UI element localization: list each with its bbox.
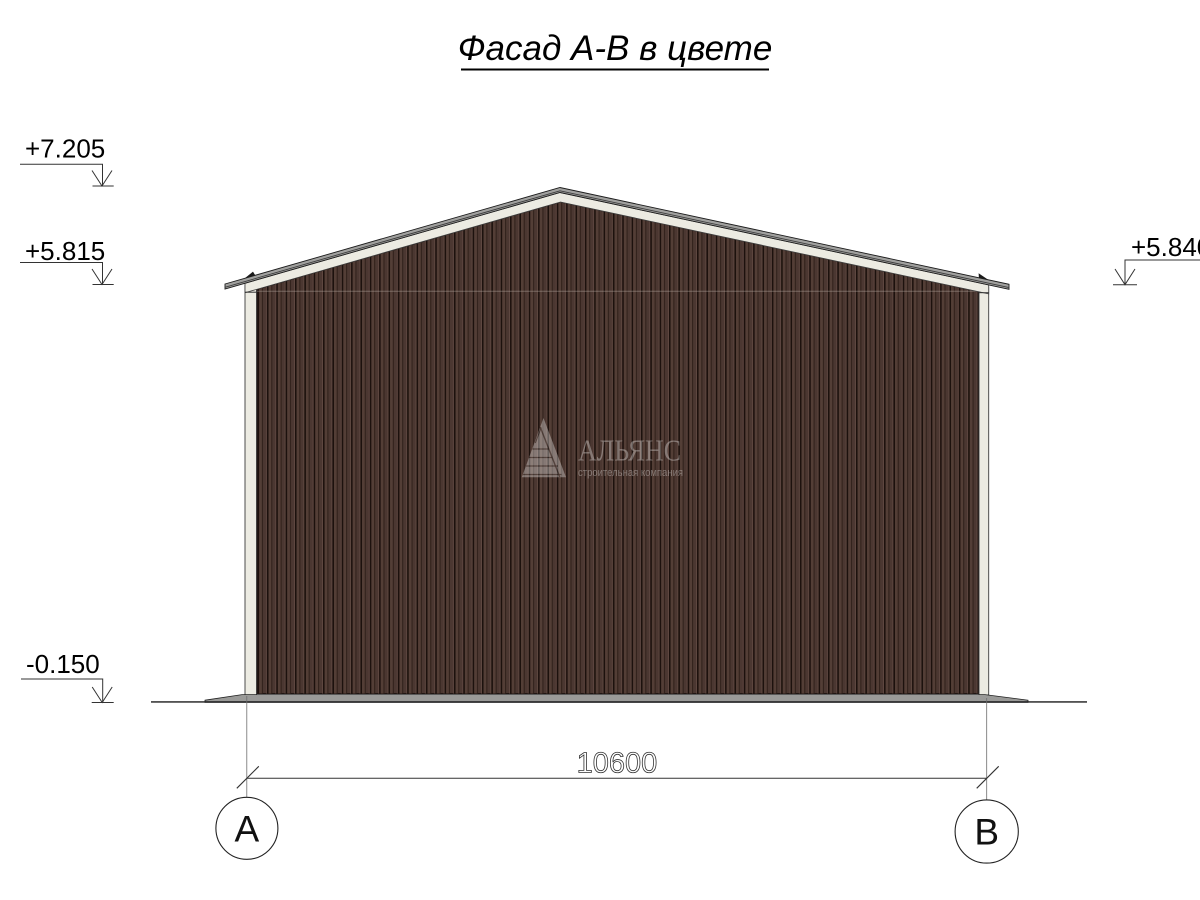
svg-text:+7.205: +7.205: [25, 134, 105, 164]
svg-text:АЛЬЯНС: АЛЬЯНС: [578, 433, 681, 468]
svg-text:В: В: [974, 812, 999, 853]
svg-text:+5.840: +5.840: [1131, 232, 1200, 262]
svg-text:10600: 10600: [577, 748, 658, 780]
svg-text:А: А: [235, 809, 260, 850]
svg-text:строительная компания: строительная компания: [578, 467, 683, 479]
svg-text:Фасад А-В в цвете: Фасад А-В в цвете: [458, 29, 773, 68]
svg-text:-0.150: -0.150: [26, 649, 100, 679]
svg-text:+5.815: +5.815: [25, 236, 105, 266]
